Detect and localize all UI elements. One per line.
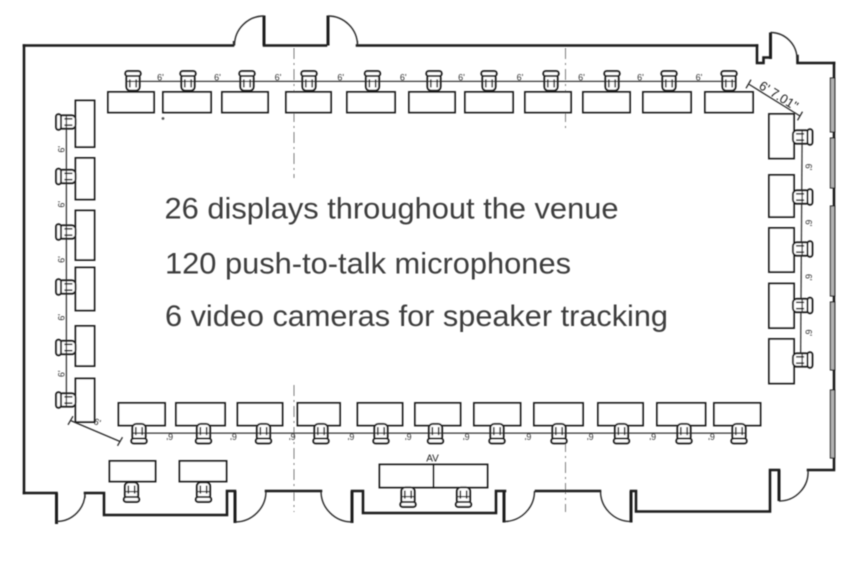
svg-text:6': 6' (157, 72, 164, 82)
svg-text:6': 6' (289, 431, 296, 441)
svg-text:6': 6' (230, 431, 237, 441)
svg-text:6': 6' (347, 431, 354, 441)
svg-text:6': 6' (463, 431, 470, 441)
svg-text:6': 6' (637, 72, 644, 82)
svg-text:6': 6' (587, 431, 594, 441)
svg-text:6': 6' (275, 72, 282, 82)
svg-text:6': 6' (804, 329, 814, 336)
svg-text:AV: AV (426, 454, 439, 465)
svg-text:6 video cameras for speaker tr: 6 video cameras for speaker tracking (165, 300, 668, 333)
svg-text:6': 6' (708, 431, 715, 441)
svg-text:120 push-to-talk microphones: 120 push-to-talk microphones (165, 247, 571, 280)
svg-text:6': 6' (804, 164, 814, 171)
svg-text:6': 6' (517, 72, 524, 82)
svg-text:6': 6' (696, 72, 703, 82)
svg-text:6': 6' (214, 72, 221, 82)
svg-text:6': 6' (400, 72, 407, 82)
svg-text:6': 6' (524, 431, 531, 441)
svg-text:6': 6' (337, 72, 344, 82)
svg-text:6': 6' (56, 314, 66, 321)
svg-text:6': 6' (56, 370, 66, 377)
svg-text:6': 6' (458, 72, 465, 82)
svg-text:6': 6' (166, 431, 173, 441)
svg-text:6': 6' (804, 220, 814, 227)
svg-text:6': 6' (578, 72, 585, 82)
svg-text:6': 6' (649, 431, 656, 441)
svg-text:6': 6' (56, 146, 66, 153)
svg-text:6': 6' (56, 201, 66, 208)
svg-text:6': 6' (56, 256, 66, 263)
svg-text:6': 6' (804, 274, 814, 281)
svg-text:6': 6' (405, 431, 412, 441)
svg-text:26 displays throughout the ven: 26 displays throughout the venue (165, 193, 619, 226)
